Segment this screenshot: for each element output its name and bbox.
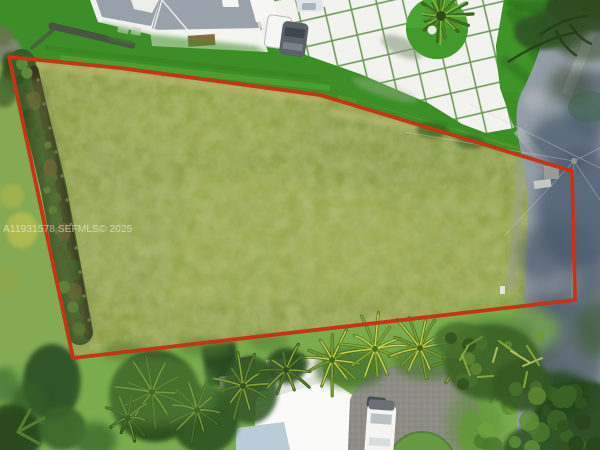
svg-text:A11931578 SEFMLS© 2025: A11931578 SEFMLS© 2025 bbox=[3, 224, 133, 235]
